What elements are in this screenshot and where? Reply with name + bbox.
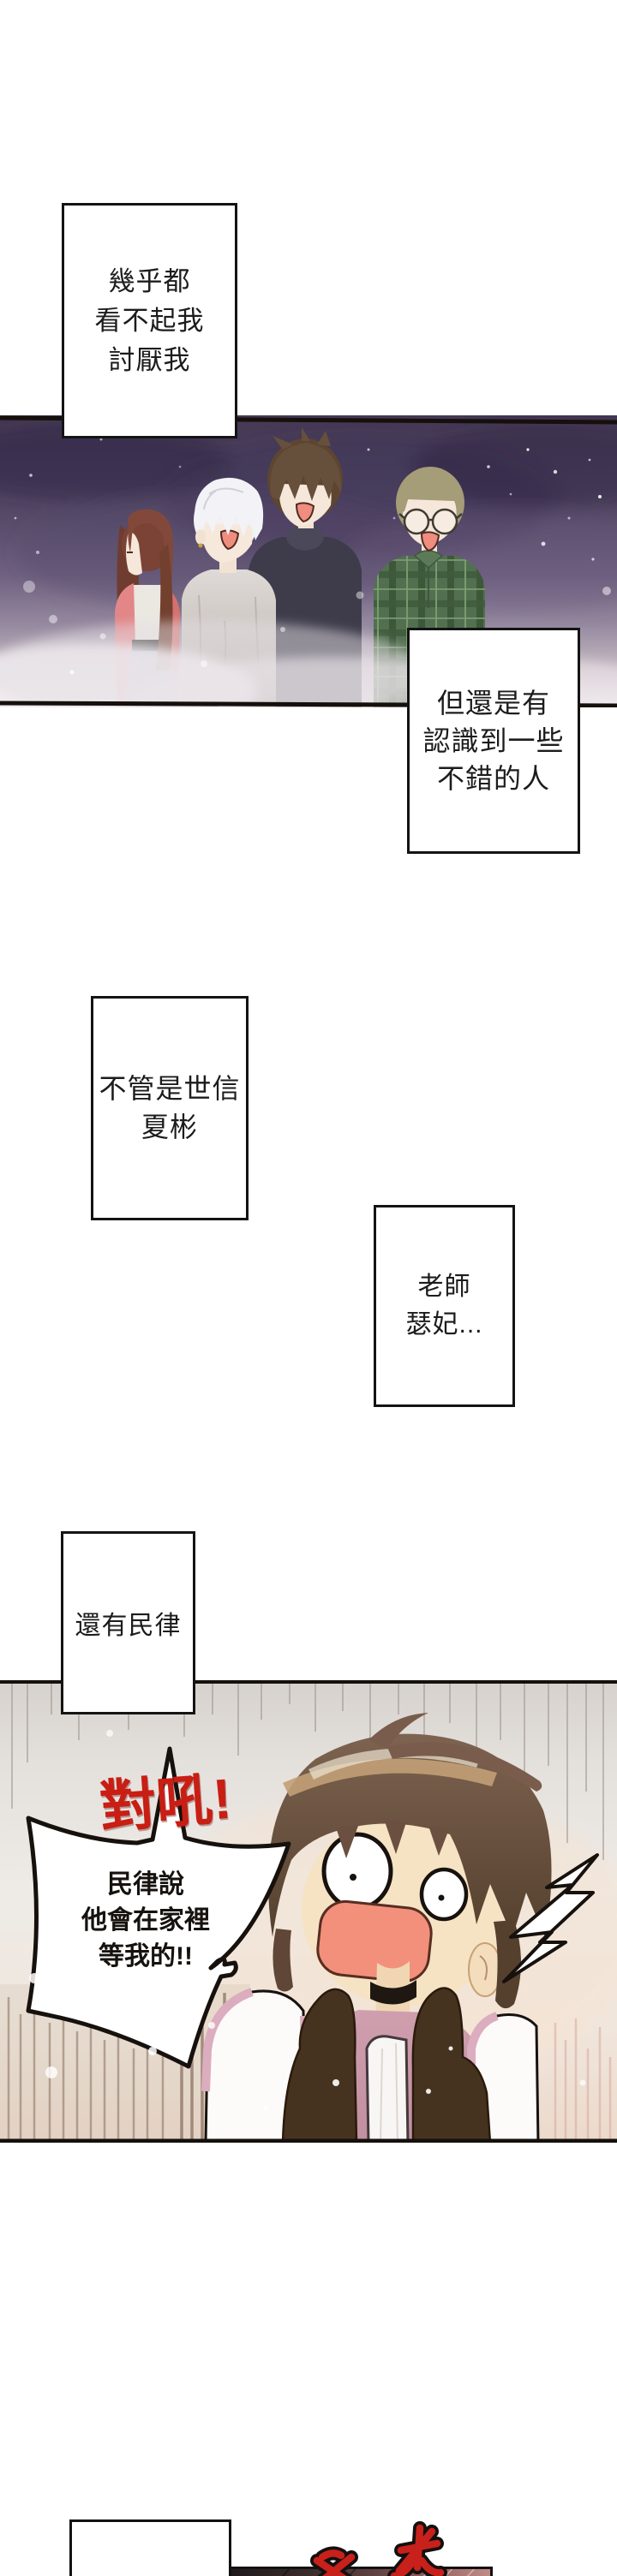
webtoon-page: 對吼! 民律說 他會在家裡 等我的!! 幾乎都 看不起我 討厭我 但還是有 認識… — [0, 0, 617, 2576]
sfx-realization-text: 對吼! — [97, 1753, 234, 1845]
narration-box-2: 但還是有 認識到一些 不錯的人 — [407, 628, 580, 854]
bottom-narration-box-empty — [69, 2519, 231, 2576]
narration-box-4: 老師 瑟妃... — [374, 1205, 515, 1407]
narration-line: 認識到一些 — [422, 722, 564, 760]
narration-line: 幾乎都 — [109, 262, 191, 301]
narration-box-1: 幾乎都 看不起我 討厭我 — [62, 203, 237, 438]
narration-line: 看不起我 — [95, 301, 205, 341]
narration-line: 夏彬 — [141, 1108, 198, 1147]
narration-line: 討厭我 — [109, 341, 191, 380]
open-mouth — [315, 1899, 434, 1983]
narration-line: 還有民律 — [75, 1604, 182, 1642]
narration-box-5: 還有民律 — [61, 1531, 195, 1714]
speech-bubble-text: 民律說 他會在家裡 等我的!! — [43, 1867, 249, 1975]
ear — [469, 1943, 501, 1996]
speech-line: 民律說 — [43, 1867, 249, 1903]
narration-line: 但還是有 — [437, 684, 550, 722]
narration-line: 瑟妃... — [405, 1306, 482, 1344]
narration-line: 老師 — [418, 1268, 471, 1306]
narration-box-3: 不管是世信 夏彬 — [91, 996, 249, 1220]
narration-line: 不錯的人 — [437, 760, 550, 797]
narration-line: 不管是世信 — [99, 1070, 240, 1108]
speech-line: 等我的!! — [43, 1939, 249, 1975]
shirt-graphic — [367, 2036, 408, 2143]
speech-line: 他會在家裡 — [43, 1903, 249, 1939]
